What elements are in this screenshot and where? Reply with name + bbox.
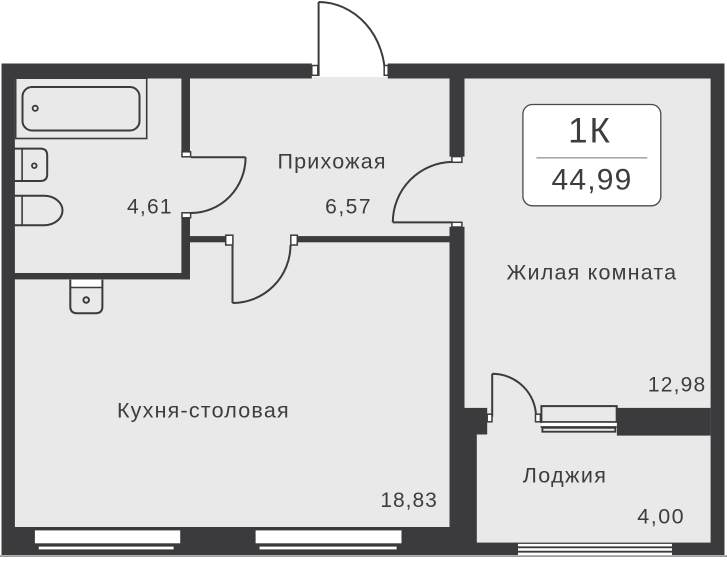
- svg-text:1К: 1К: [568, 112, 612, 151]
- svg-text:Кухня-столовая: Кухня-столовая: [117, 399, 290, 423]
- svg-text:44,99: 44,99: [551, 163, 632, 196]
- svg-text:Прихожая: Прихожая: [277, 150, 386, 174]
- svg-text:Лоджия: Лоджия: [523, 464, 608, 488]
- svg-text:18,83: 18,83: [380, 489, 438, 512]
- svg-text:6,57: 6,57: [325, 196, 372, 219]
- svg-text:12,98: 12,98: [648, 374, 707, 397]
- svg-text:4,00: 4,00: [637, 505, 685, 529]
- svg-text:4,61: 4,61: [127, 195, 173, 218]
- svg-text:Жилая комната: Жилая комната: [506, 261, 677, 285]
